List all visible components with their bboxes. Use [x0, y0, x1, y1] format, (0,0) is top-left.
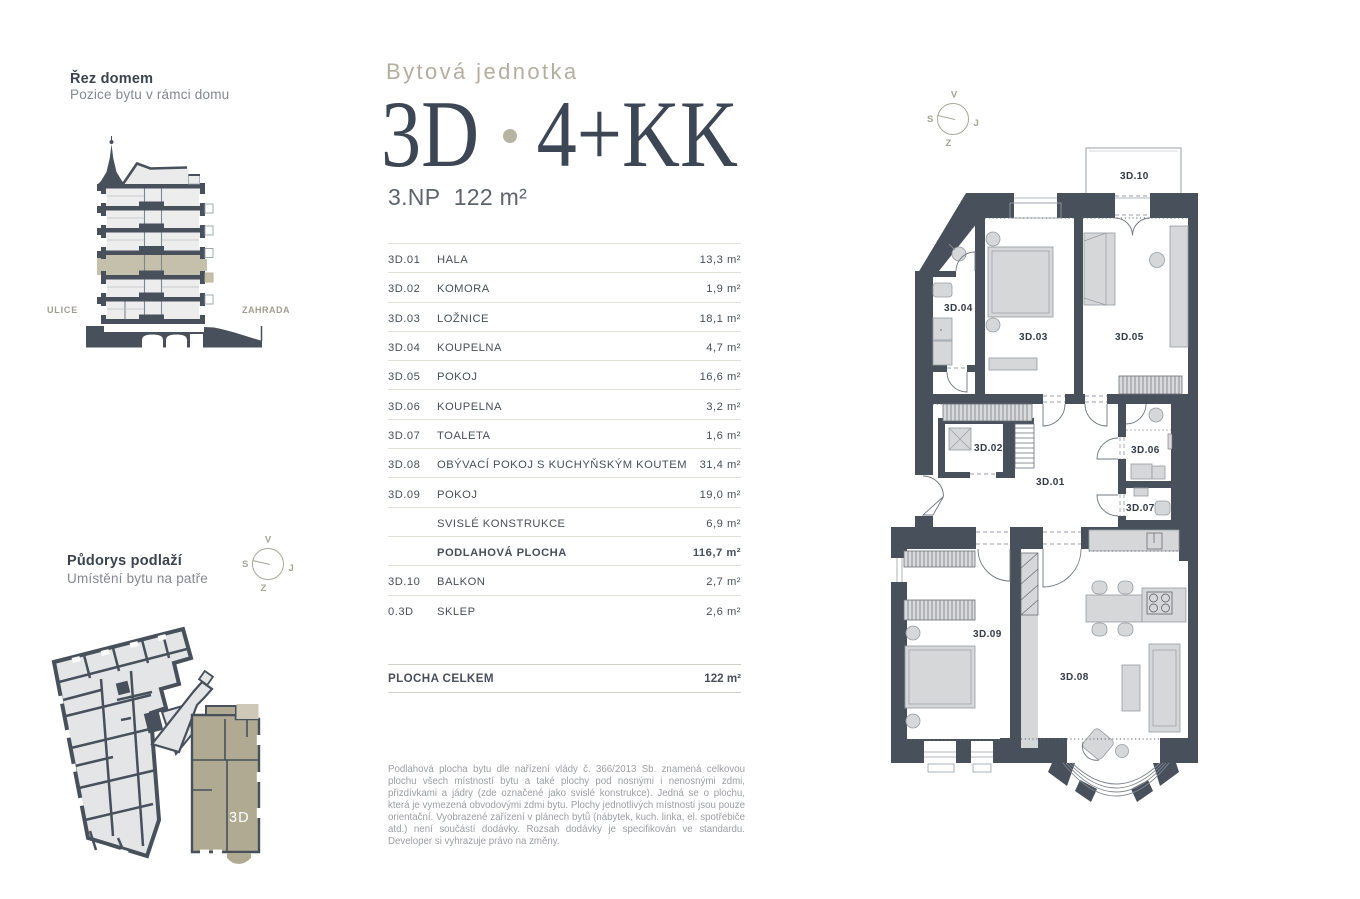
svg-text:3D.03: 3D.03: [1019, 332, 1048, 343]
svg-text:S: S: [242, 559, 248, 570]
svg-text:3D.02: 3D.02: [974, 443, 1003, 454]
svg-text:3D.01: 3D.01: [1036, 477, 1065, 488]
svg-text:ULICE: ULICE: [47, 305, 78, 315]
svg-text:J: J: [289, 563, 294, 574]
svg-text:3D.05: 3D.05: [1115, 332, 1144, 343]
svg-text:3D.10: 3D.10: [1120, 171, 1149, 182]
svg-text:J: J: [974, 118, 979, 129]
svg-text:3D.08: 3D.08: [1060, 672, 1089, 683]
svg-text:3D: 3D: [229, 810, 250, 826]
svg-text:ZAHRADA: ZAHRADA: [242, 305, 290, 315]
svg-text:Z: Z: [261, 583, 267, 594]
svg-text:3D.07: 3D.07: [1126, 503, 1155, 514]
svg-text:V: V: [265, 535, 272, 546]
svg-text:V: V: [951, 90, 958, 101]
svg-text:3D.09: 3D.09: [973, 629, 1002, 640]
svg-text:S: S: [927, 114, 933, 125]
svg-text:3D.06: 3D.06: [1131, 445, 1160, 456]
svg-text:3D.04: 3D.04: [944, 303, 973, 314]
